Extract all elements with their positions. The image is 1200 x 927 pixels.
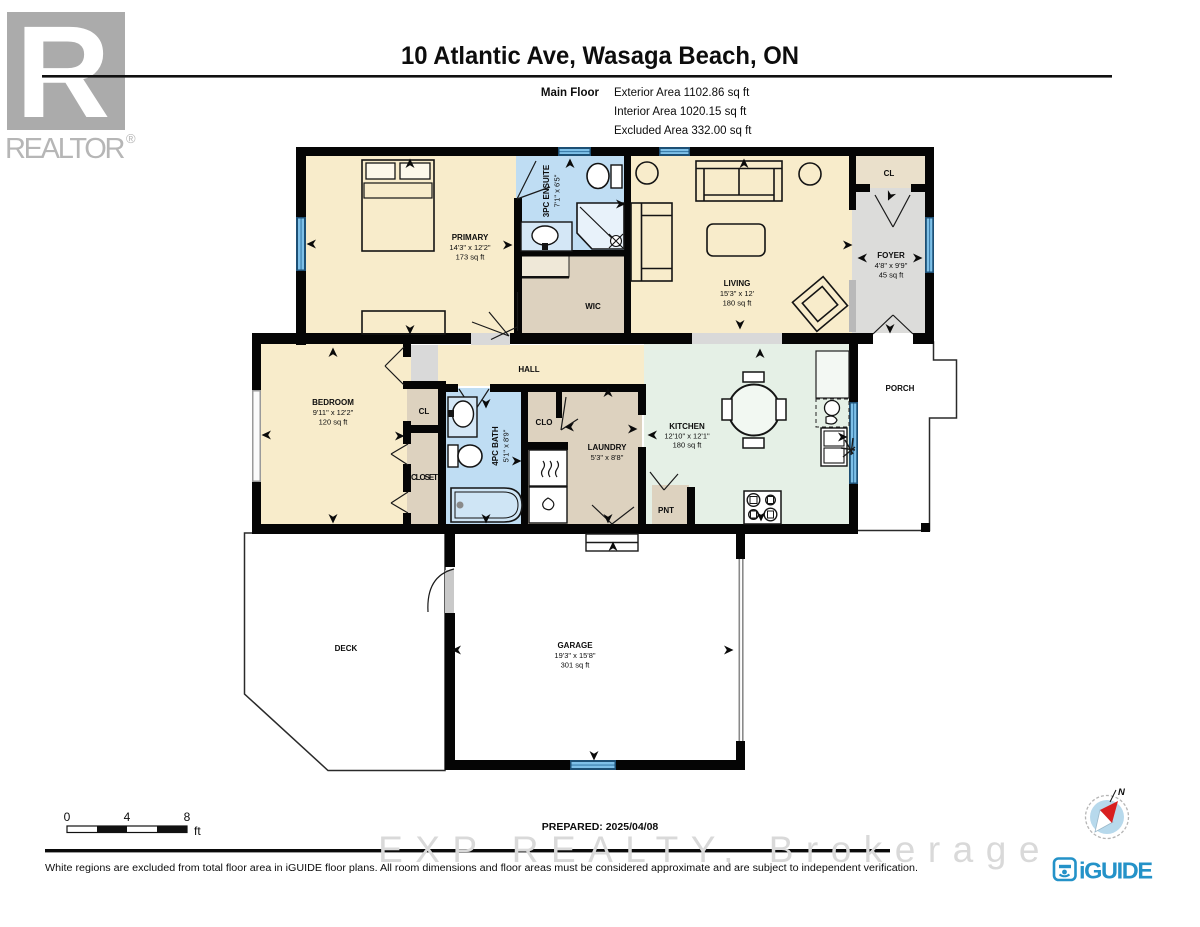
- svg-text:KITCHEN: KITCHEN: [669, 422, 705, 431]
- svg-text:19'3" x 15'8": 19'3" x 15'8": [554, 651, 595, 660]
- svg-text:LAUNDRY: LAUNDRY: [588, 443, 627, 452]
- svg-text:15'3" x 12': 15'3" x 12': [720, 289, 755, 298]
- svg-text:CLO: CLO: [536, 418, 553, 427]
- svg-text:3PC ENSUITE: 3PC ENSUITE: [542, 164, 551, 217]
- svg-text:Main Floor: Main Floor: [541, 87, 600, 99]
- svg-text:Excluded Area 332.00 sq ft: Excluded Area 332.00 sq ft: [614, 125, 752, 137]
- svg-text:HALL: HALL: [518, 365, 539, 374]
- svg-text:180 sq ft: 180 sq ft: [673, 441, 703, 450]
- svg-text:12'10" x 12'1": 12'10" x 12'1": [664, 432, 710, 441]
- svg-text:14'3" x 12'2": 14'3" x 12'2": [449, 243, 490, 252]
- svg-text:CLOSET: CLOSET: [411, 473, 438, 482]
- svg-text:CL: CL: [884, 169, 895, 178]
- svg-text:4: 4: [124, 810, 131, 824]
- svg-text:CL: CL: [419, 407, 430, 416]
- svg-text:301 sq ft: 301 sq ft: [561, 661, 591, 670]
- svg-text:ft: ft: [194, 824, 201, 838]
- svg-text:180 sq ft: 180 sq ft: [723, 299, 753, 308]
- svg-text:®: ®: [126, 131, 136, 146]
- svg-text:WIC: WIC: [585, 302, 601, 311]
- svg-text:0: 0: [64, 810, 71, 824]
- svg-text:BEDROOM: BEDROOM: [312, 398, 354, 407]
- svg-text:PNT: PNT: [658, 506, 674, 515]
- svg-text:Interior Area 1020.15 sq ft: Interior Area 1020.15 sq ft: [614, 106, 747, 118]
- svg-text:R: R: [16, 0, 111, 145]
- svg-text:9'11" x 12'2": 9'11" x 12'2": [313, 408, 354, 417]
- svg-text:REALTOR: REALTOR: [5, 133, 126, 165]
- svg-text:8: 8: [184, 810, 191, 824]
- svg-text:GARAGE: GARAGE: [557, 641, 593, 650]
- svg-text:LIVING: LIVING: [724, 279, 751, 288]
- svg-text:iGUIDE: iGUIDE: [1079, 858, 1153, 884]
- svg-text:FOYER: FOYER: [877, 251, 905, 260]
- svg-text:10 Atlantic Ave, Wasaga Beach,: 10 Atlantic Ave, Wasaga Beach, ON: [401, 42, 799, 70]
- svg-text:5'3" x 8'8": 5'3" x 8'8": [591, 453, 624, 462]
- svg-text:DECK: DECK: [335, 644, 358, 653]
- svg-text:45 sq ft: 45 sq ft: [879, 271, 905, 280]
- svg-text:White regions are excluded fro: White regions are excluded from total fl…: [45, 863, 918, 874]
- svg-text:Exterior Area 1102.86 sq ft: Exterior Area 1102.86 sq ft: [614, 87, 750, 99]
- svg-text:N: N: [1118, 787, 1126, 798]
- svg-text:173 sq ft: 173 sq ft: [456, 253, 486, 262]
- svg-text:7'1" x 6'5": 7'1" x 6'5": [553, 174, 562, 207]
- svg-text:4'8" x 9'9": 4'8" x 9'9": [875, 261, 908, 270]
- svg-text:4PC BATH: 4PC BATH: [491, 426, 500, 466]
- svg-text:5'1" x 8'9": 5'1" x 8'9": [502, 429, 511, 462]
- svg-text:PRIMARY: PRIMARY: [452, 233, 489, 242]
- svg-text:120 sq ft: 120 sq ft: [319, 418, 349, 427]
- svg-text:PORCH: PORCH: [886, 384, 915, 393]
